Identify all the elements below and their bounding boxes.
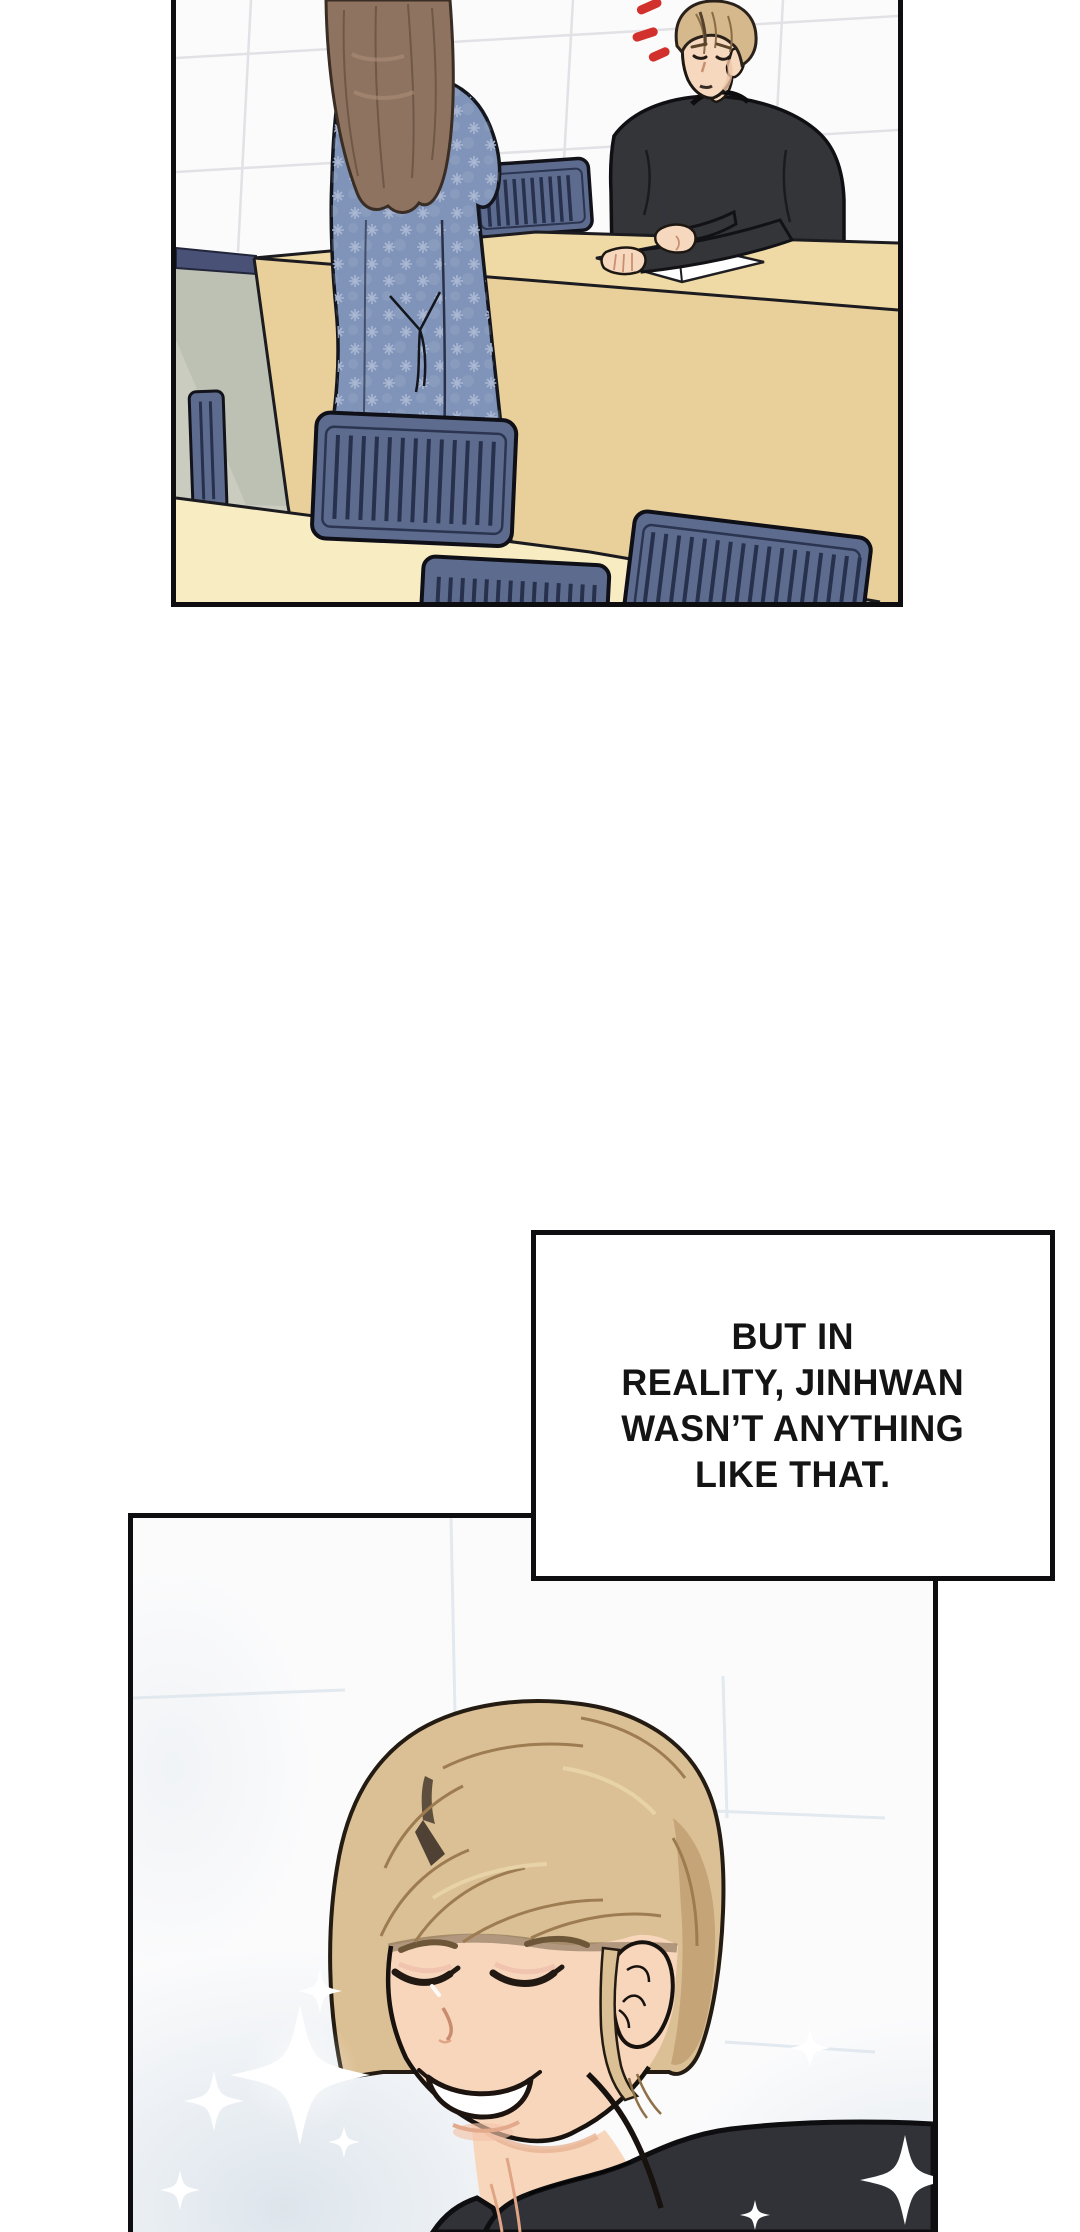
panel-classroom-scene [171,0,903,607]
narration-text: BUT IN REALITY, JINHWAN WASN’T ANYTHING … [622,1314,965,1498]
mouth [700,86,712,88]
hand-with-pen [655,225,695,253]
left-chair [189,391,227,510]
classroom-scene-art [176,0,898,602]
narration-box: BUT IN REALITY, JINHWAN WASN’T ANYTHING … [531,1230,1055,1581]
foreground-chair-left [312,412,517,547]
closeup-scene-art [133,1518,933,2232]
panel-closeup-scene [128,1513,938,2232]
foreground-chair-center [420,556,610,602]
comic-page: BUT IN REALITY, JINHWAN WASN’T ANYTHING … [0,0,1080,2232]
